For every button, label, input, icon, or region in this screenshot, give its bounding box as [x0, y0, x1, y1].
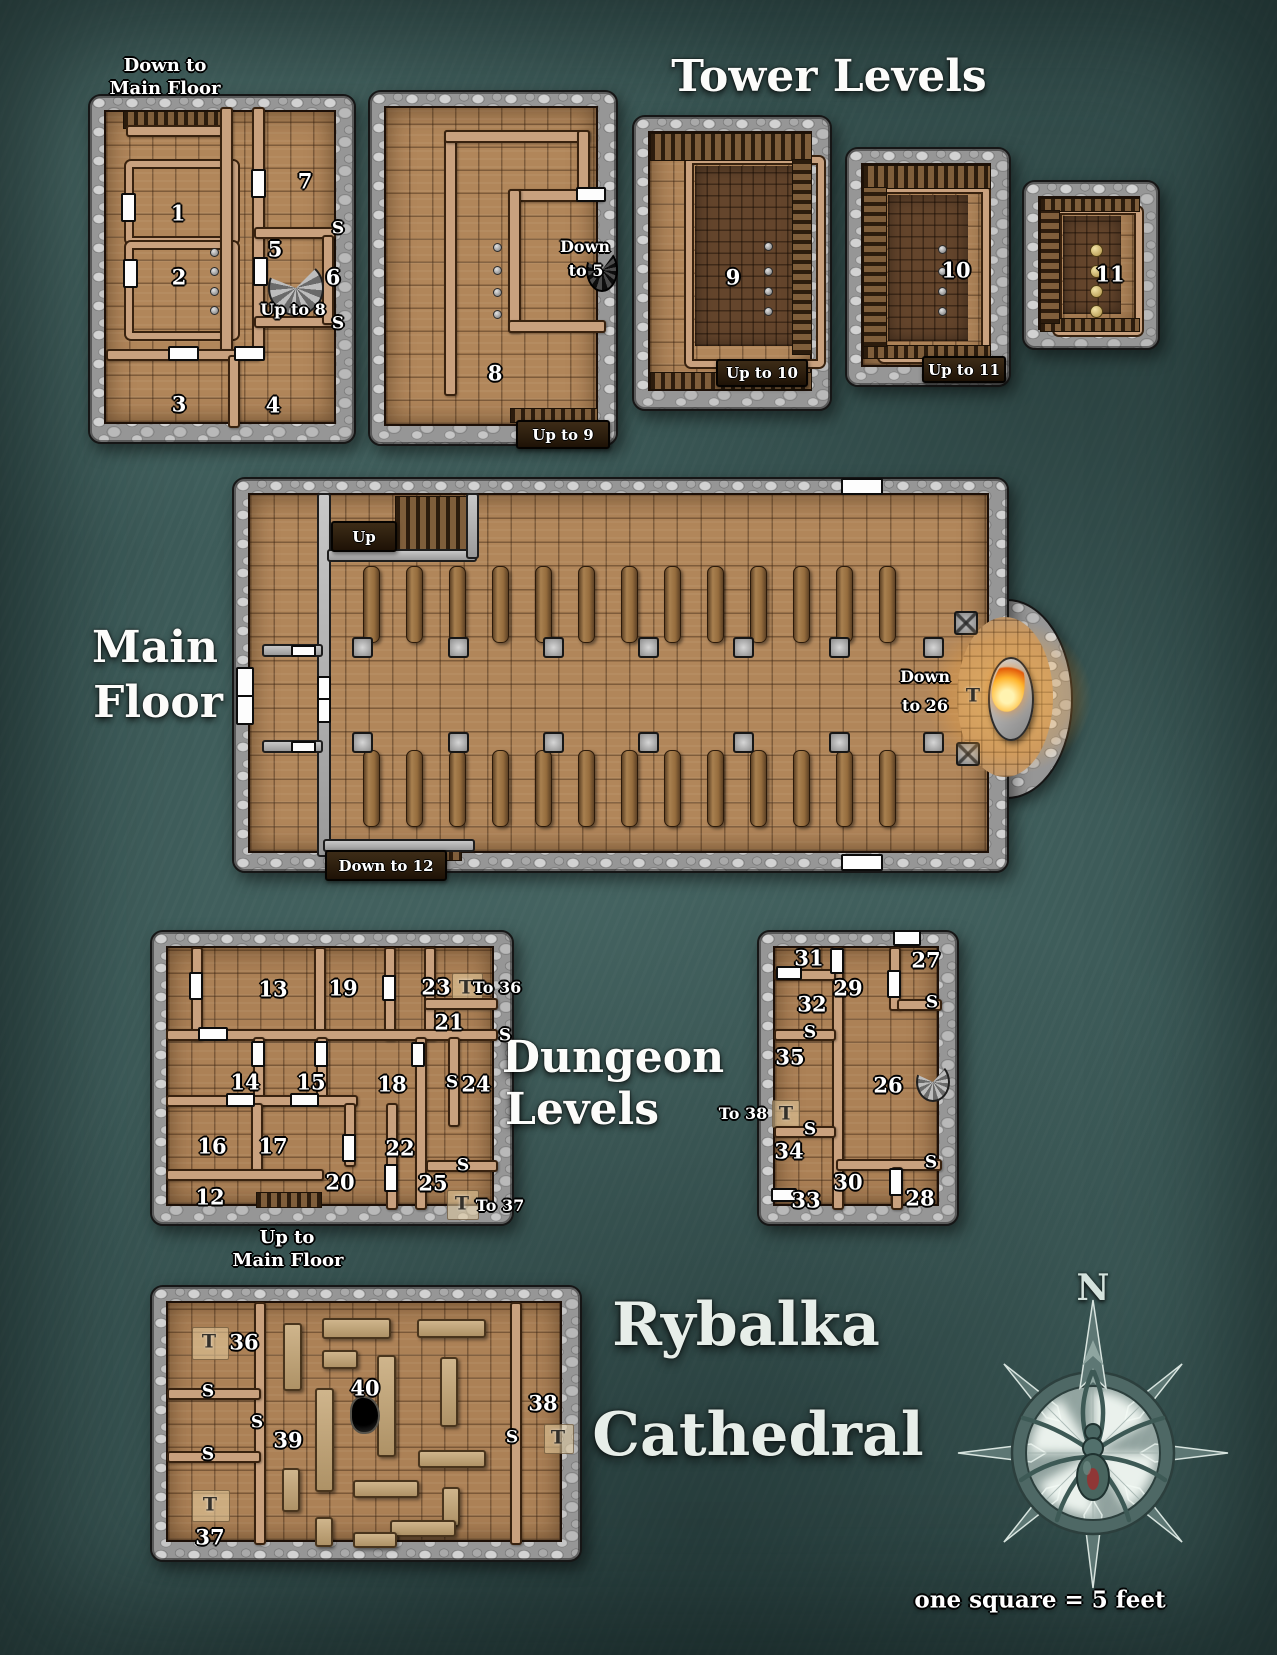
column-dot	[493, 266, 502, 275]
room-number: 19	[328, 978, 357, 999]
door-marker	[893, 930, 921, 946]
room-number: 11	[1095, 264, 1124, 285]
trap-marker: T	[203, 1496, 217, 1515]
wall	[166, 1169, 324, 1181]
room-number: 6	[326, 267, 341, 288]
decorated-pillar	[954, 611, 978, 635]
floor-caption: to 5	[569, 263, 604, 279]
wall	[444, 130, 590, 143]
pew	[879, 750, 896, 827]
room-number: 32	[797, 994, 826, 1015]
secret-door-marker: S	[332, 316, 344, 333]
door-marker	[841, 854, 883, 871]
room-number: 24	[461, 1074, 490, 1095]
sarcophagus-block	[315, 1517, 333, 1547]
column-dot	[210, 306, 219, 315]
pit-icon	[350, 1396, 380, 1434]
room-number: 12	[195, 1187, 224, 1208]
bell-icon	[1090, 285, 1103, 298]
secret-door-marker: S	[457, 1158, 469, 1175]
pew	[793, 566, 810, 643]
pew	[406, 566, 423, 643]
sarcophagus-block	[440, 1357, 458, 1427]
stairs-icon	[650, 133, 812, 161]
pew	[578, 566, 595, 643]
room-number: 15	[296, 1072, 325, 1093]
floor-caption: to 26	[902, 698, 948, 714]
pew	[621, 750, 638, 827]
floor-caption: To 36	[473, 980, 522, 996]
sarcophagus-block	[377, 1355, 396, 1457]
dungeon-map-page: Tower Levels Main Floor Dungeon Levels R…	[0, 0, 1277, 1655]
room-number: 17	[258, 1136, 287, 1157]
column-dot	[764, 287, 773, 296]
room-number: 20	[325, 1172, 354, 1193]
room-number: 39	[273, 1430, 302, 1451]
door-marker	[314, 1041, 328, 1067]
down-to-12-banner: Down to 12	[325, 850, 447, 881]
wall	[228, 355, 240, 428]
wall	[220, 107, 233, 358]
floor-caption: Down	[560, 239, 610, 255]
sarcophagus-block	[390, 1520, 456, 1537]
wall	[508, 189, 521, 333]
door-marker	[830, 948, 844, 974]
sarcophagus-block	[322, 1350, 358, 1369]
pew	[707, 566, 724, 643]
dungeon-a-caption-line2: Main Floor	[233, 1252, 344, 1270]
room-number: 25	[418, 1173, 447, 1194]
up-to-11-banner: Up to 11	[922, 356, 1006, 383]
door-marker	[253, 257, 268, 286]
wall	[424, 998, 498, 1010]
door-marker	[384, 1164, 398, 1192]
secret-door-marker: S	[202, 1447, 214, 1464]
sarcophagus-block	[418, 1450, 486, 1468]
pew	[449, 750, 466, 827]
door-marker	[576, 187, 606, 202]
floor-caption: To 37	[476, 1198, 525, 1214]
door-marker	[123, 259, 138, 288]
secret-door-marker: S	[506, 1430, 518, 1447]
room-number: 3	[172, 394, 187, 415]
pew	[578, 750, 595, 827]
up-to-10-banner: Up to 10	[716, 359, 808, 387]
tower-levels-title: Tower Levels	[671, 55, 986, 99]
north-arrow	[1080, 1300, 1106, 1392]
wall	[508, 320, 606, 333]
trap-marker: T	[202, 1333, 216, 1352]
column-dot	[938, 287, 947, 296]
column-dot	[764, 267, 773, 276]
bell-icon	[1090, 244, 1103, 257]
column-dot	[493, 243, 502, 252]
sarcophagus-block	[417, 1319, 486, 1338]
room-number: 10	[941, 260, 970, 281]
dungeon-levels-title-line2: Levels	[505, 1088, 659, 1132]
room-number: 37	[195, 1527, 224, 1548]
room-number: 38	[528, 1393, 557, 1414]
secret-door-marker: S	[446, 1075, 458, 1092]
pew	[492, 750, 509, 827]
stairs-icon	[395, 496, 471, 550]
secret-door-marker: S	[804, 1025, 816, 1042]
room-number: 21	[434, 1012, 463, 1033]
room-number: 23	[421, 977, 450, 998]
compass-rose	[955, 1296, 1231, 1596]
door-marker	[411, 1042, 425, 1067]
door-marker	[382, 975, 396, 1001]
floor-caption: To 38	[719, 1106, 768, 1122]
wall	[444, 130, 457, 396]
room-number: 40	[350, 1378, 379, 1399]
sarcophagus-block	[283, 1323, 302, 1391]
door-marker	[121, 193, 136, 222]
room-number: 16	[197, 1136, 226, 1157]
door-marker	[236, 667, 254, 697]
door-marker	[189, 972, 203, 1000]
room-number: 27	[911, 950, 940, 971]
main-floor-title-line1: Main	[92, 626, 218, 670]
pew	[406, 750, 423, 827]
door-marker	[236, 695, 254, 725]
room-number: 8	[488, 363, 503, 384]
map-name-line2: Cathedral	[592, 1405, 923, 1465]
door-marker	[234, 346, 265, 361]
door-marker	[342, 1134, 356, 1162]
room-number: 28	[905, 1188, 934, 1209]
dungeon-levels-title-line1: Dungeon	[502, 1036, 724, 1080]
room-number: 4	[266, 395, 281, 416]
room-number: 5	[268, 239, 283, 260]
secret-door-marker: S	[251, 1415, 263, 1432]
room-number: 34	[774, 1141, 803, 1162]
secret-door-marker: S	[332, 221, 344, 238]
door-marker	[841, 478, 883, 495]
stairs-icon	[1040, 210, 1060, 324]
pew	[621, 566, 638, 643]
pew	[363, 566, 380, 643]
wall	[314, 947, 326, 1041]
pillar	[733, 732, 754, 753]
pillar	[829, 732, 850, 753]
pew	[750, 566, 767, 643]
room-number: 30	[833, 1172, 862, 1193]
room-wall-box	[879, 186, 989, 362]
room-number: 35	[775, 1047, 804, 1068]
door-marker	[889, 1168, 903, 1196]
pew	[793, 750, 810, 827]
floor-caption: Up to 8	[260, 302, 325, 318]
pew	[664, 750, 681, 827]
door-marker	[168, 346, 199, 361]
room-number: 33	[791, 1190, 820, 1211]
tower1-caption-line2: Main Floor	[110, 80, 221, 98]
pew	[449, 566, 466, 643]
floor-caption: Down	[900, 669, 950, 685]
trap-marker: T	[455, 1195, 469, 1214]
sarcophagus-block	[353, 1532, 397, 1548]
compass-north-label: N	[1077, 1267, 1110, 1309]
pillar	[923, 637, 944, 658]
wall	[126, 125, 229, 137]
trap-marker: T	[551, 1429, 565, 1448]
door-marker	[291, 741, 316, 753]
door-marker	[887, 970, 901, 998]
room-number: 29	[833, 978, 862, 999]
door-marker	[251, 169, 266, 198]
sarcophagus-block	[322, 1318, 391, 1339]
room-number: 14	[230, 1072, 259, 1093]
secret-door-marker: S	[926, 995, 938, 1012]
pillar	[733, 637, 754, 658]
pew	[535, 566, 552, 643]
pew	[535, 750, 552, 827]
decorated-pillar	[956, 742, 980, 766]
sarcophagus-block	[315, 1388, 334, 1492]
trap-marker: T	[966, 687, 980, 706]
scale-note: one square = 5 feet	[914, 1587, 1165, 1614]
column-dot	[210, 248, 219, 257]
pillar	[448, 732, 469, 753]
secret-door-marker: S	[202, 1384, 214, 1401]
stairs-icon	[256, 1192, 322, 1208]
sarcophagus-block	[282, 1468, 300, 1512]
main-floor-title-line2: Floor	[93, 681, 223, 725]
column-dot	[210, 287, 219, 296]
room-number: 13	[258, 979, 287, 1000]
room-number: 2	[172, 267, 187, 288]
pew	[492, 566, 509, 643]
pew	[707, 750, 724, 827]
wall	[510, 1302, 522, 1545]
bell-icon	[1090, 305, 1103, 318]
secret-door-marker: S	[499, 1028, 511, 1045]
stone-wall	[317, 493, 331, 857]
pillar	[829, 637, 850, 658]
column-dot	[764, 242, 773, 251]
up-banner: Up	[331, 521, 397, 552]
door-marker	[317, 698, 331, 723]
pillar	[543, 732, 564, 753]
stairs-icon	[792, 159, 812, 355]
door-marker	[251, 1041, 265, 1067]
pew	[750, 750, 767, 827]
pew	[836, 566, 853, 643]
up-to-9-banner: Up to 9	[516, 420, 610, 449]
trap-marker: T	[459, 979, 473, 998]
room-number: 1	[171, 203, 186, 224]
stone-wall	[466, 493, 479, 559]
column-dot	[493, 288, 502, 297]
room-number: 9	[726, 267, 741, 288]
stairs-icon	[863, 165, 991, 189]
pillar	[352, 637, 373, 658]
pew	[836, 750, 853, 827]
pillar	[543, 637, 564, 658]
room-number: 36	[229, 1332, 258, 1353]
pillar	[638, 732, 659, 753]
room-number: 7	[298, 171, 313, 192]
pillar	[638, 637, 659, 658]
room-number: 31	[794, 948, 823, 969]
column-dot	[210, 267, 219, 276]
door-marker	[290, 1093, 319, 1107]
secret-door-marker: S	[804, 1122, 816, 1139]
room-number: 18	[377, 1074, 406, 1095]
pew	[363, 750, 380, 827]
door-marker	[198, 1027, 228, 1041]
column-dot	[764, 307, 773, 316]
column-dot	[493, 310, 502, 319]
pew	[879, 566, 896, 643]
secret-door-marker: S	[925, 1155, 937, 1172]
dungeon-a-caption-line1: Up to	[260, 1229, 315, 1247]
stairs-icon	[863, 187, 887, 347]
map-name-line1: Rybalka	[612, 1295, 880, 1355]
sarcophagus-block	[353, 1480, 419, 1498]
column-dot	[938, 245, 947, 254]
column-dot	[938, 307, 947, 316]
tower1-caption-line1: Down to	[124, 57, 207, 75]
room-number: 26	[873, 1075, 902, 1096]
pillar	[923, 732, 944, 753]
pillar	[448, 637, 469, 658]
trap-marker: T	[779, 1105, 793, 1124]
room-number: 22	[385, 1138, 414, 1159]
door-marker	[291, 645, 316, 657]
pew	[664, 566, 681, 643]
door-marker	[226, 1093, 255, 1107]
pillar	[352, 732, 373, 753]
